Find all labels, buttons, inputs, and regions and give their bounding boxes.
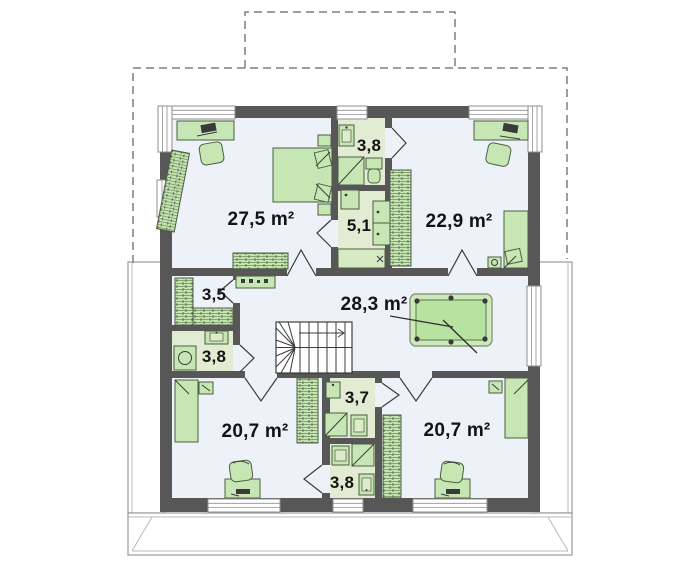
window-icon: [337, 106, 367, 119]
room-area-label: 28,3 m²: [341, 294, 408, 316]
window-icon: [333, 499, 363, 512]
room-area-label: 3,8: [202, 347, 226, 367]
chair-icon: [229, 460, 254, 483]
window-icon: [528, 106, 542, 152]
wardrobe-icon: [383, 415, 401, 498]
bed-icon: [505, 378, 528, 438]
desk-icon: [225, 479, 260, 498]
window-icon: [158, 106, 172, 152]
laptop-icon: [446, 489, 460, 494]
room-area-label: 20,7 m²: [222, 421, 289, 443]
nightstand-icon: [488, 257, 501, 268]
room-area-label: 20,7 m²: [424, 420, 491, 442]
room-area-label: 22,9 m²: [426, 211, 493, 233]
floor-plan: 27,5 m² 3,8 5,1 22,9 m² 3,5 28,3 m² 3,8 …: [0, 0, 700, 575]
chair-icon: [198, 141, 224, 166]
room-area-label: 3,8: [330, 473, 354, 493]
shower-icon: [352, 444, 374, 466]
window-icon: [163, 106, 235, 119]
toilet-icon: [366, 158, 382, 183]
shower-icon: [325, 413, 347, 436]
sideboard-icon: [233, 253, 288, 269]
window-icon: [527, 286, 541, 366]
pillow-icon: [505, 248, 522, 264]
sink-icon: [205, 331, 228, 344]
room-area-label: 3,7: [345, 388, 369, 408]
washing-machine-icon: [174, 346, 196, 370]
bed-icon: [175, 380, 198, 442]
toilet-icon: [359, 474, 374, 495]
nightstand-icon: [318, 204, 331, 215]
room-area-label: 5,1: [347, 216, 371, 236]
wardrobe-icon: [175, 278, 193, 325]
toilet-icon: [351, 415, 367, 436]
wardrobe-icon: [193, 308, 233, 325]
sink-icon: [326, 382, 340, 398]
washing-machine-icon: [373, 201, 391, 223]
desk-icon: [474, 121, 528, 140]
dormer-outline: [245, 12, 455, 68]
chair-icon: [440, 461, 465, 484]
laptop-icon: [236, 489, 250, 494]
room-area-label: 3,5: [202, 285, 226, 305]
shower-icon: [338, 157, 364, 185]
room-area-label: 27,5 m²: [228, 209, 295, 231]
shelf-icon: [236, 276, 275, 288]
sink-icon: [332, 446, 349, 465]
counter-icon: [338, 249, 385, 268]
wardrobe-icon: [297, 378, 318, 443]
sink-icon: [339, 125, 354, 146]
window-icon: [208, 499, 280, 512]
washing-machine-icon: [341, 190, 359, 209]
nightstand-icon: [318, 135, 331, 146]
room-area-label: 3,8: [357, 136, 381, 156]
stairs-icon: [276, 322, 352, 373]
washing-machine-icon: [373, 223, 391, 245]
chair-icon: [485, 142, 512, 167]
window-icon: [413, 499, 487, 512]
wardrobe-icon: [390, 170, 411, 266]
